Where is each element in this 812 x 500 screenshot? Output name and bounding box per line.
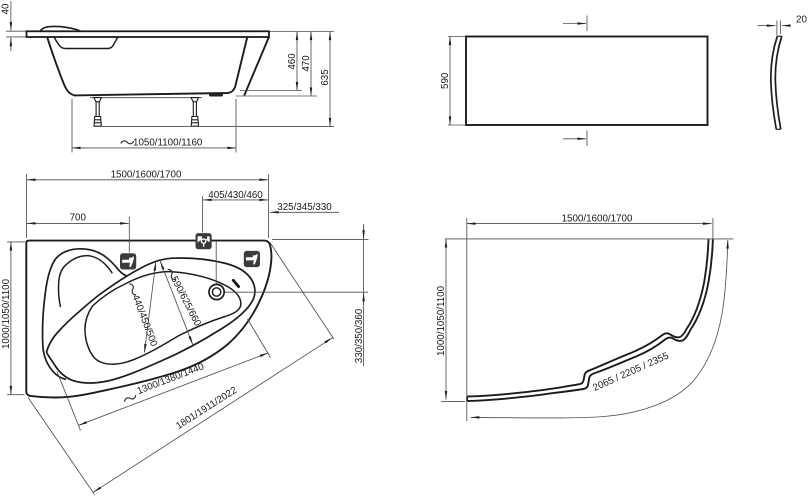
svg-text:20: 20 — [796, 15, 807, 26]
svg-text:40: 40 — [1, 3, 12, 14]
svg-text:590: 590 — [440, 72, 451, 89]
svg-text:635: 635 — [320, 69, 331, 86]
svg-text:470: 470 — [301, 55, 312, 72]
svg-text:460: 460 — [287, 53, 298, 70]
svg-text:700: 700 — [70, 212, 87, 223]
svg-text:1000/1050/1100: 1000/1050/1100 — [436, 285, 447, 356]
svg-text:325/345/330: 325/345/330 — [277, 202, 332, 213]
svg-text:2065 / 2205 / 2355: 2065 / 2205 / 2355 — [591, 350, 671, 394]
svg-text:330/350/360: 330/350/360 — [354, 308, 365, 363]
svg-text:1500/1600/1700: 1500/1600/1700 — [111, 170, 182, 181]
svg-text:1801/1911/2022: 1801/1911/2022 — [174, 385, 239, 432]
svg-text:1000/1050/1100: 1000/1050/1100 — [1, 278, 12, 349]
svg-text:1500/1600/1700: 1500/1600/1700 — [562, 213, 633, 224]
svg-text:405/430/460: 405/430/460 — [208, 190, 263, 201]
svg-text:1050/1100/1160: 1050/1100/1160 — [133, 137, 203, 148]
